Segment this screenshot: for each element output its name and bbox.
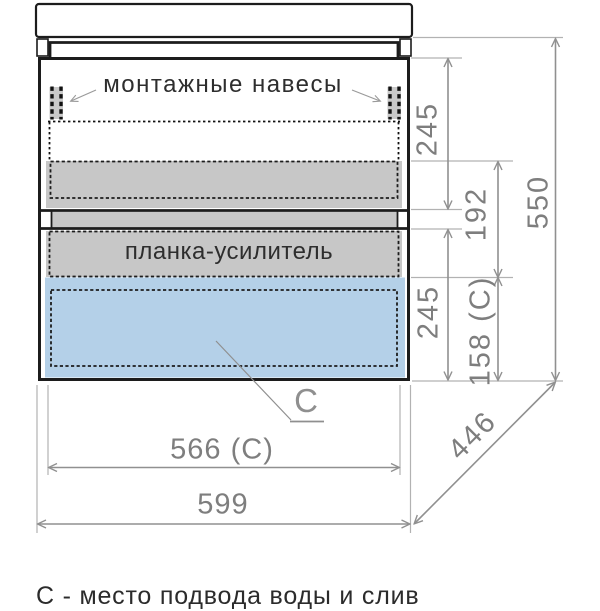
dim-text-drawer-top-height: 245	[412, 102, 445, 156]
top-drawer-panel	[46, 161, 402, 208]
drawer-gap	[38, 211, 410, 229]
dim-text-inner-width: 566 (С)	[170, 434, 274, 467]
diagram-caption: С - место подвода воды и слив	[36, 582, 419, 611]
label-reinforcement-bar: планка-усилитель	[125, 238, 333, 266]
side-cap-right	[400, 39, 411, 56]
dim-text-c-zone-height: 158 (С)	[465, 276, 498, 387]
water-zone	[45, 278, 405, 378]
dim-line-depth	[415, 383, 556, 524]
side-cap-left	[37, 39, 48, 56]
label-c-marker: С	[294, 382, 318, 420]
dim-text-drawer-bottom-height: 245	[413, 285, 446, 339]
mounting-hanger-right	[388, 87, 402, 120]
dim-text-overall-height: 550	[523, 175, 556, 229]
dim-text-middle-gap: 192	[461, 187, 494, 241]
countertop	[36, 4, 412, 37]
label-mounting-hangers: монтажные навесы	[103, 71, 342, 99]
dim-text-overall-width: 599	[197, 489, 248, 522]
mounting-hanger-left	[50, 87, 64, 120]
top-rail	[50, 43, 398, 59]
vanity-dimension-diagram: монтажные навесы планка-усилитель С 245 …	[0, 0, 600, 600]
